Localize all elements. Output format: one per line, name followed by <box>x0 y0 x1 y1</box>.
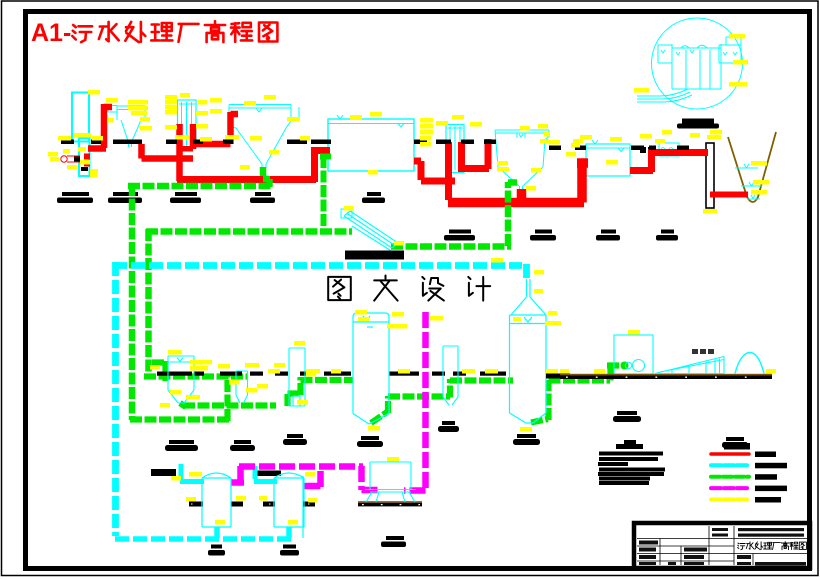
svg-text:A1-: A1- <box>31 19 71 47</box>
